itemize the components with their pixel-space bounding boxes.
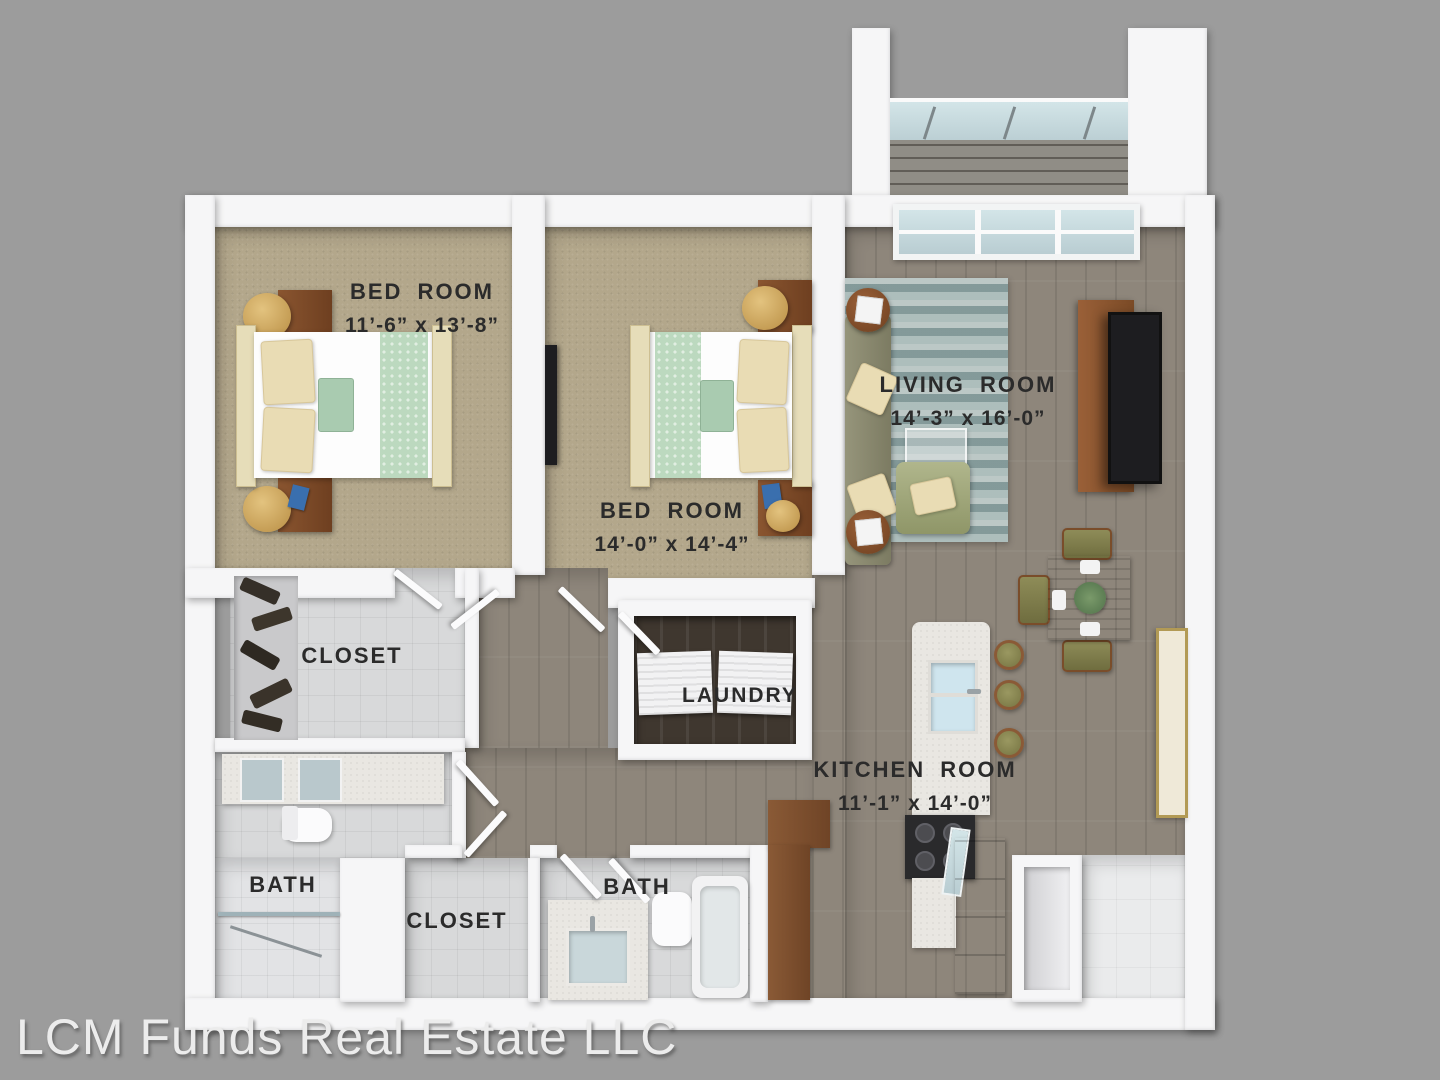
bathtub-basin — [700, 886, 740, 988]
bath2-sink — [566, 928, 630, 986]
patio-door-frame — [893, 204, 1140, 260]
bedroom2-label: BED ROOM 14’-0” x 14’-4” — [594, 498, 749, 557]
shower-glass — [218, 912, 340, 916]
patio-door-glass — [899, 210, 1134, 254]
bedroom1-label: BED ROOM 11’-6” x 13’-8” — [345, 279, 499, 338]
railing-post — [923, 106, 936, 139]
place-setting — [1080, 622, 1100, 636]
refrigerator — [955, 838, 1005, 994]
hallway-floor — [465, 748, 812, 858]
table-lamp — [243, 486, 291, 532]
wall-tv — [1108, 312, 1162, 484]
toilet — [652, 892, 692, 946]
bed-headboard — [792, 325, 812, 487]
patio-door-mullion — [899, 230, 1134, 234]
balcony-deck — [890, 140, 1128, 198]
faucet — [967, 689, 981, 694]
room-name: CLOSET — [301, 643, 402, 669]
burner — [915, 851, 935, 871]
room-dimensions: 11’-1” x 14’-0” — [813, 792, 1016, 816]
wall-hall-bottom-c — [630, 845, 752, 858]
bed-runner — [655, 332, 701, 478]
accent-pillow — [318, 378, 354, 432]
room-name: KITCHEN ROOM — [813, 757, 1016, 783]
balcony-right-wall — [1128, 28, 1207, 200]
room-name: LIVING ROOM — [880, 372, 1057, 398]
vanity-mirror — [298, 758, 342, 802]
vanity-mirror — [240, 758, 284, 802]
place-setting — [1080, 560, 1100, 574]
wall-bed1-bottom-b — [455, 568, 515, 598]
kitchen-label: KITCHEN ROOM 11’-1” x 14’-0” — [813, 757, 1016, 816]
wall-bath1-closet2-block — [340, 858, 405, 1002]
room-name: BED ROOM — [594, 498, 749, 524]
wall-closet1-bath1 — [215, 738, 465, 752]
living-room-label: LIVING ROOM 14’-3” x 16’-0” — [880, 372, 1057, 431]
toilet-tank — [282, 806, 298, 840]
entry-closet — [1012, 855, 1082, 1002]
bar-stool — [994, 680, 1024, 710]
balcony-glass-railing — [890, 98, 1128, 144]
bar-stool — [994, 640, 1024, 670]
entry-closet-interior — [1024, 867, 1070, 990]
bed-headboard — [236, 325, 256, 487]
bed-runner — [380, 332, 428, 478]
bed-pillow — [260, 339, 315, 406]
accent-pillow — [700, 380, 734, 432]
side-table-lamp — [855, 296, 884, 325]
dining-chair — [1018, 575, 1050, 625]
wall-hall-bottom-b — [530, 845, 557, 858]
bed-footboard — [630, 325, 650, 487]
table-plant — [1074, 582, 1106, 614]
bed-pillow — [736, 407, 789, 474]
laundry-closet — [618, 600, 812, 760]
wall-artwork — [1156, 628, 1188, 818]
balcony-left-wall — [852, 28, 890, 200]
railing-post — [1083, 106, 1096, 139]
bed-pillow — [736, 339, 789, 406]
room-name: LAUNDRY — [682, 684, 798, 708]
place-setting — [1052, 590, 1066, 610]
closet1-label: CLOSET — [301, 643, 402, 669]
laundry-label: LAUNDRY — [682, 684, 798, 708]
room-name: BED ROOM — [345, 279, 499, 305]
dining-chair — [1062, 640, 1112, 672]
entry-floor — [1082, 855, 1185, 1002]
island-sink — [928, 660, 978, 734]
wall-hall-bottom-a — [405, 845, 462, 858]
bed-pillow — [260, 407, 315, 474]
wall-closet2-bath2 — [528, 858, 540, 1002]
watermark-text: LCM Funds Real Estate LLC — [16, 1008, 677, 1066]
burner — [915, 823, 935, 843]
room-name: BATH — [603, 874, 670, 900]
bath2-label: BATH — [603, 874, 670, 900]
room-name: CLOSET — [406, 908, 507, 934]
wall-tv — [545, 345, 557, 465]
wall-bed2-living — [812, 195, 845, 575]
bed-footboard — [432, 325, 452, 487]
outer-wall-right — [1185, 195, 1215, 1030]
room-dimensions: 14’-0” x 14’-4” — [594, 533, 749, 557]
side-table-lamp — [855, 518, 884, 547]
bar-stool — [994, 728, 1024, 758]
wall-closet1-right — [465, 568, 479, 748]
kitchen-counter — [768, 845, 810, 1000]
closet2-label: CLOSET — [406, 908, 507, 934]
table-lamp — [742, 286, 788, 330]
straw-hat — [766, 500, 800, 532]
room-dimensions: 11’-6” x 13’-8” — [345, 314, 499, 338]
wall-bath2-kitchen — [750, 845, 768, 1002]
faucet — [590, 916, 595, 932]
room-dimensions: 14’-3” x 16’-0” — [880, 407, 1057, 431]
outer-wall-left — [185, 195, 215, 1030]
railing-post — [1003, 106, 1016, 139]
room-name: BATH — [249, 872, 316, 898]
bath1-label: BATH — [249, 872, 316, 898]
floor-plan-render: BED ROOM 11’-6” x 13’-8” BED ROOM 14’-0”… — [0, 0, 1440, 1080]
wall-bed1-bed2 — [512, 195, 545, 575]
bathtub — [692, 876, 748, 998]
